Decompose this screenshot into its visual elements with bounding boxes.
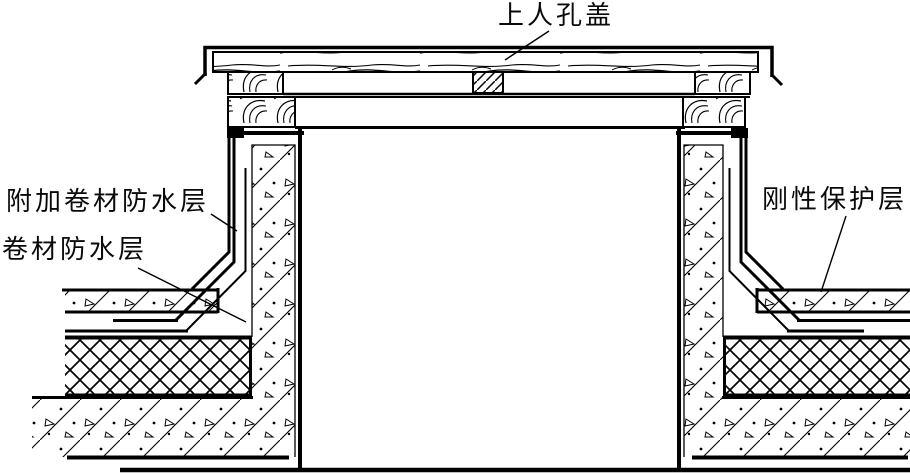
label-additional-membrane: 附加卷材防水层 (6, 189, 209, 215)
cover-wood-block-right-lower (683, 97, 745, 127)
right-structural-slab (692, 398, 910, 457)
label-cover: 上人孔盖 (498, 3, 614, 29)
cover-top-board (213, 52, 758, 72)
cover-center-batten (473, 72, 503, 93)
left-structural-slab (32, 398, 287, 457)
left-roof-assembly (32, 128, 304, 470)
detail-drawing-page: 上人孔盖 附加卷材防水层 卷材防水层 刚性保护层 (0, 0, 910, 474)
cover-wood-block-left-lower (228, 97, 295, 127)
label-membrane: 卷材防水层 (2, 237, 147, 263)
leader-rigid-protection-line (821, 216, 846, 292)
right-insulation-layer (725, 337, 910, 396)
cover-wood-block-left-upper (228, 72, 283, 94)
cover-wood-block-right-upper (695, 72, 750, 94)
label-rigid-protection: 刚性保护层 (762, 187, 907, 213)
right-roof-assembly (676, 128, 910, 470)
left-insulation-layer (65, 337, 250, 396)
manhole-cover-assembly (195, 48, 782, 128)
